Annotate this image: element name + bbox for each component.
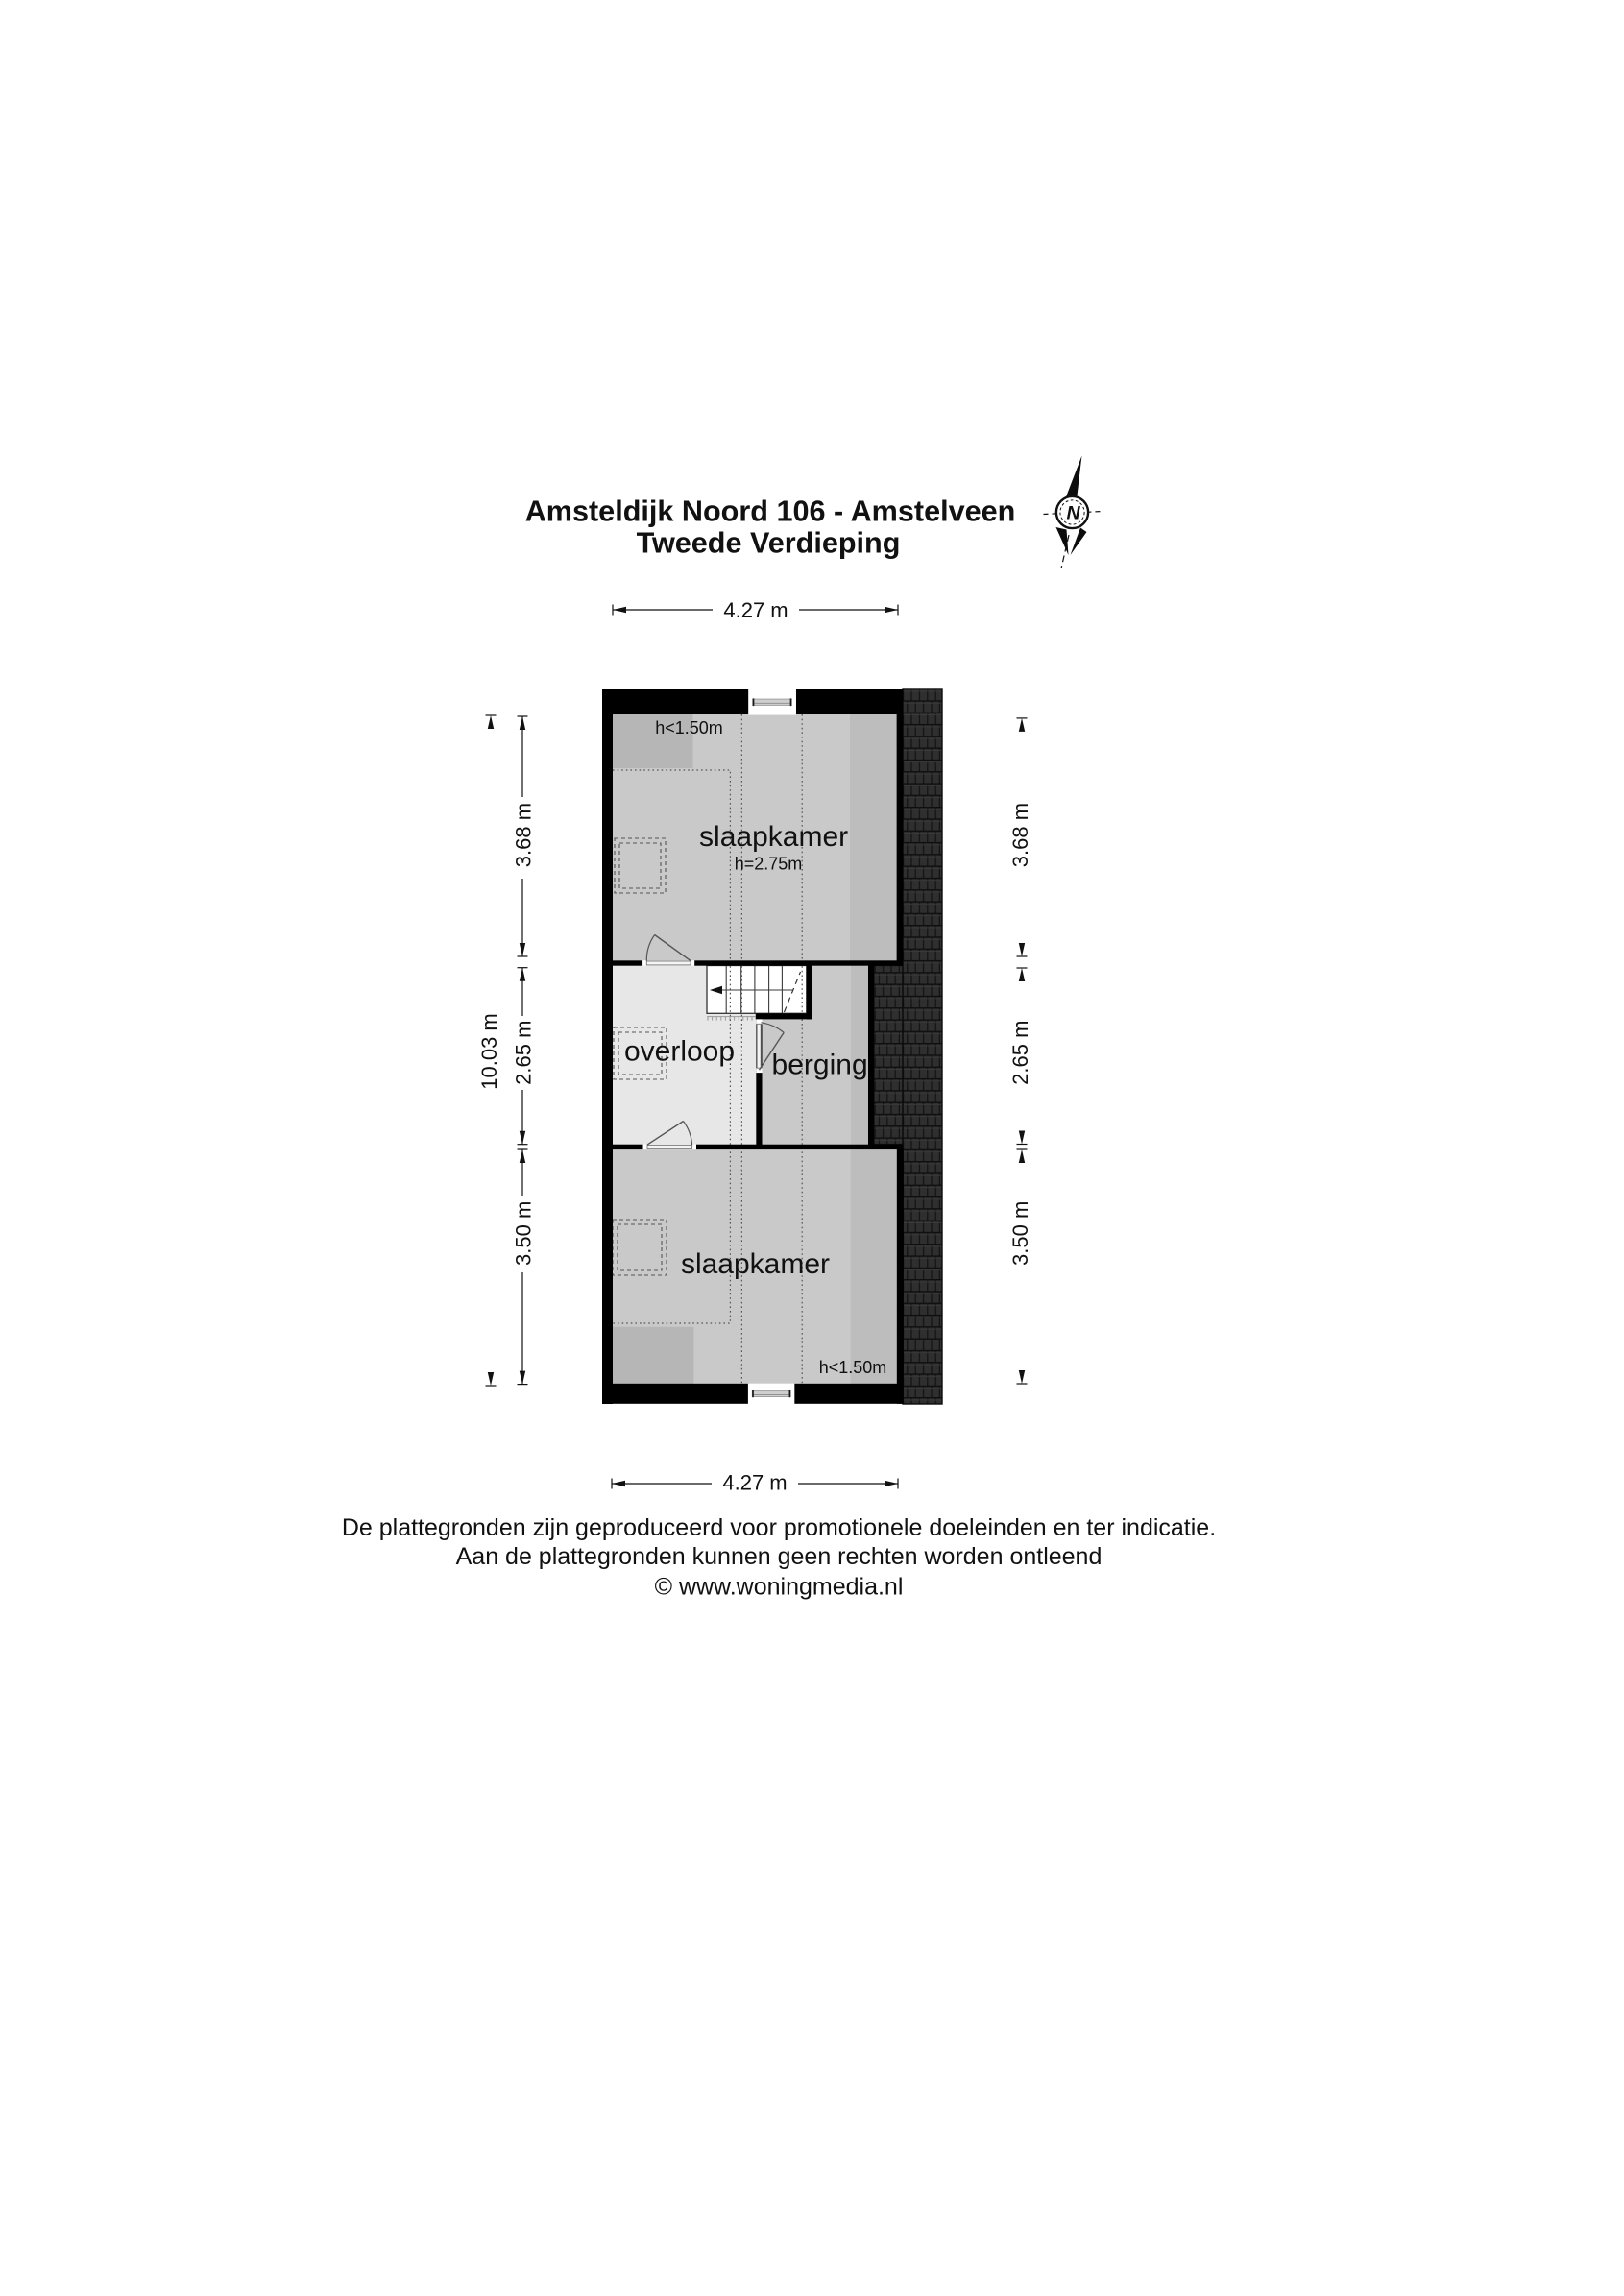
svg-text:Amsteldijk Noord 106 - Amstelv: Amsteldijk Noord 106 - Amstelveen xyxy=(525,495,1016,528)
svg-text:3.50 m: 3.50 m xyxy=(1008,1201,1032,1266)
svg-text:4.27 m: 4.27 m xyxy=(722,1470,787,1494)
svg-text:h=2.75m: h=2.75m xyxy=(735,854,803,873)
svg-text:2.65 m: 2.65 m xyxy=(512,1021,536,1085)
svg-text:h<1.50m: h<1.50m xyxy=(655,718,723,737)
svg-text:4.27 m: 4.27 m xyxy=(723,598,788,622)
svg-text:3.68 m: 3.68 m xyxy=(1008,803,1032,867)
svg-text:overloop: overloop xyxy=(624,1036,735,1068)
svg-text:h<1.50m: h<1.50m xyxy=(819,1358,887,1377)
svg-text:N: N xyxy=(1066,503,1080,524)
svg-text:10.03 m: 10.03 m xyxy=(477,1013,501,1090)
svg-text:slaapkamer: slaapkamer xyxy=(699,821,848,853)
svg-text:Aan de plattegronden kunnen ge: Aan de plattegronden kunnen geen rechten… xyxy=(456,1543,1103,1570)
svg-text:slaapkamer: slaapkamer xyxy=(681,1248,830,1280)
svg-text:© www.woningmedia.nl: © www.woningmedia.nl xyxy=(655,1574,904,1601)
svg-text:De plattegronden zijn geproduc: De plattegronden zijn geproduceerd voor … xyxy=(342,1514,1216,1541)
svg-text:berging: berging xyxy=(772,1050,868,1081)
svg-text:2.65 m: 2.65 m xyxy=(1008,1021,1032,1085)
svg-text:3.68 m: 3.68 m xyxy=(512,803,536,867)
svg-text:Tweede Verdieping: Tweede Verdieping xyxy=(637,526,901,559)
svg-text:3.50 m: 3.50 m xyxy=(512,1201,536,1266)
